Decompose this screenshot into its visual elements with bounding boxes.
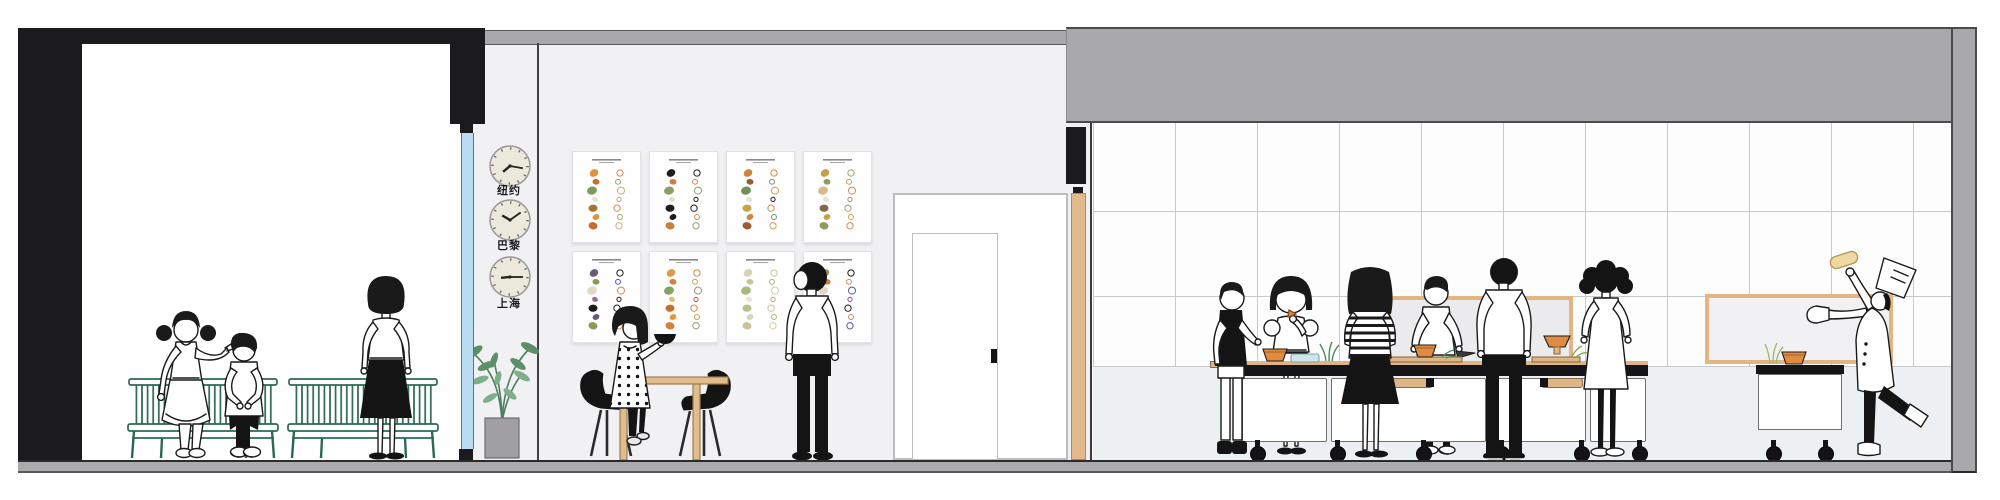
standing-man [770,256,852,462]
greens [1765,343,1783,364]
door-handle [991,349,997,363]
glass-partition-foot [459,449,473,460]
corner-column-notch [460,124,473,133]
glass-dish [1291,354,1319,362]
standing-woman [350,268,422,462]
lintel-block [1066,127,1086,184]
counter-items [1210,328,1610,364]
clock-label-shanghai: 上海 [472,295,546,311]
left-wall [18,28,82,460]
seated-girl-with-bowl [588,300,688,460]
woman-curly-dress [1570,259,1642,460]
woman-striped-back [1331,262,1409,462]
food-poster [649,151,718,243]
handle-cap [1426,378,1434,387]
kid-black-vest [1200,278,1262,460]
top-gray-strip [485,30,1068,45]
orange-bowl [1263,349,1287,361]
food-poster [803,151,872,243]
top-beam [18,28,485,44]
glass-partition [461,133,474,449]
section-illustration: 纽约 巴黎 上海 [0,0,2000,500]
kitchen-top-band [1066,27,1977,123]
orange-bowl [1414,345,1436,357]
right-wall [1951,27,1977,473]
tile-grout-line [1093,211,1951,212]
clock-label-paris: 巴黎 [472,237,546,253]
man-back-white-shirt [1458,255,1548,462]
food-poster [726,151,795,243]
wood-jamb [1071,193,1086,460]
corner-column [450,44,485,124]
clock-label-newyork: 纽约 [472,182,546,198]
clock-paris [488,198,532,242]
food-poster [572,151,641,243]
seated-boy [206,320,284,460]
kitchen-left-edge [1090,123,1092,460]
tossed-dough [1829,250,1859,270]
chef-tossing [1788,244,1938,462]
door-leaf [912,233,998,460]
clock-shanghai [488,255,532,299]
floor [18,460,1977,473]
